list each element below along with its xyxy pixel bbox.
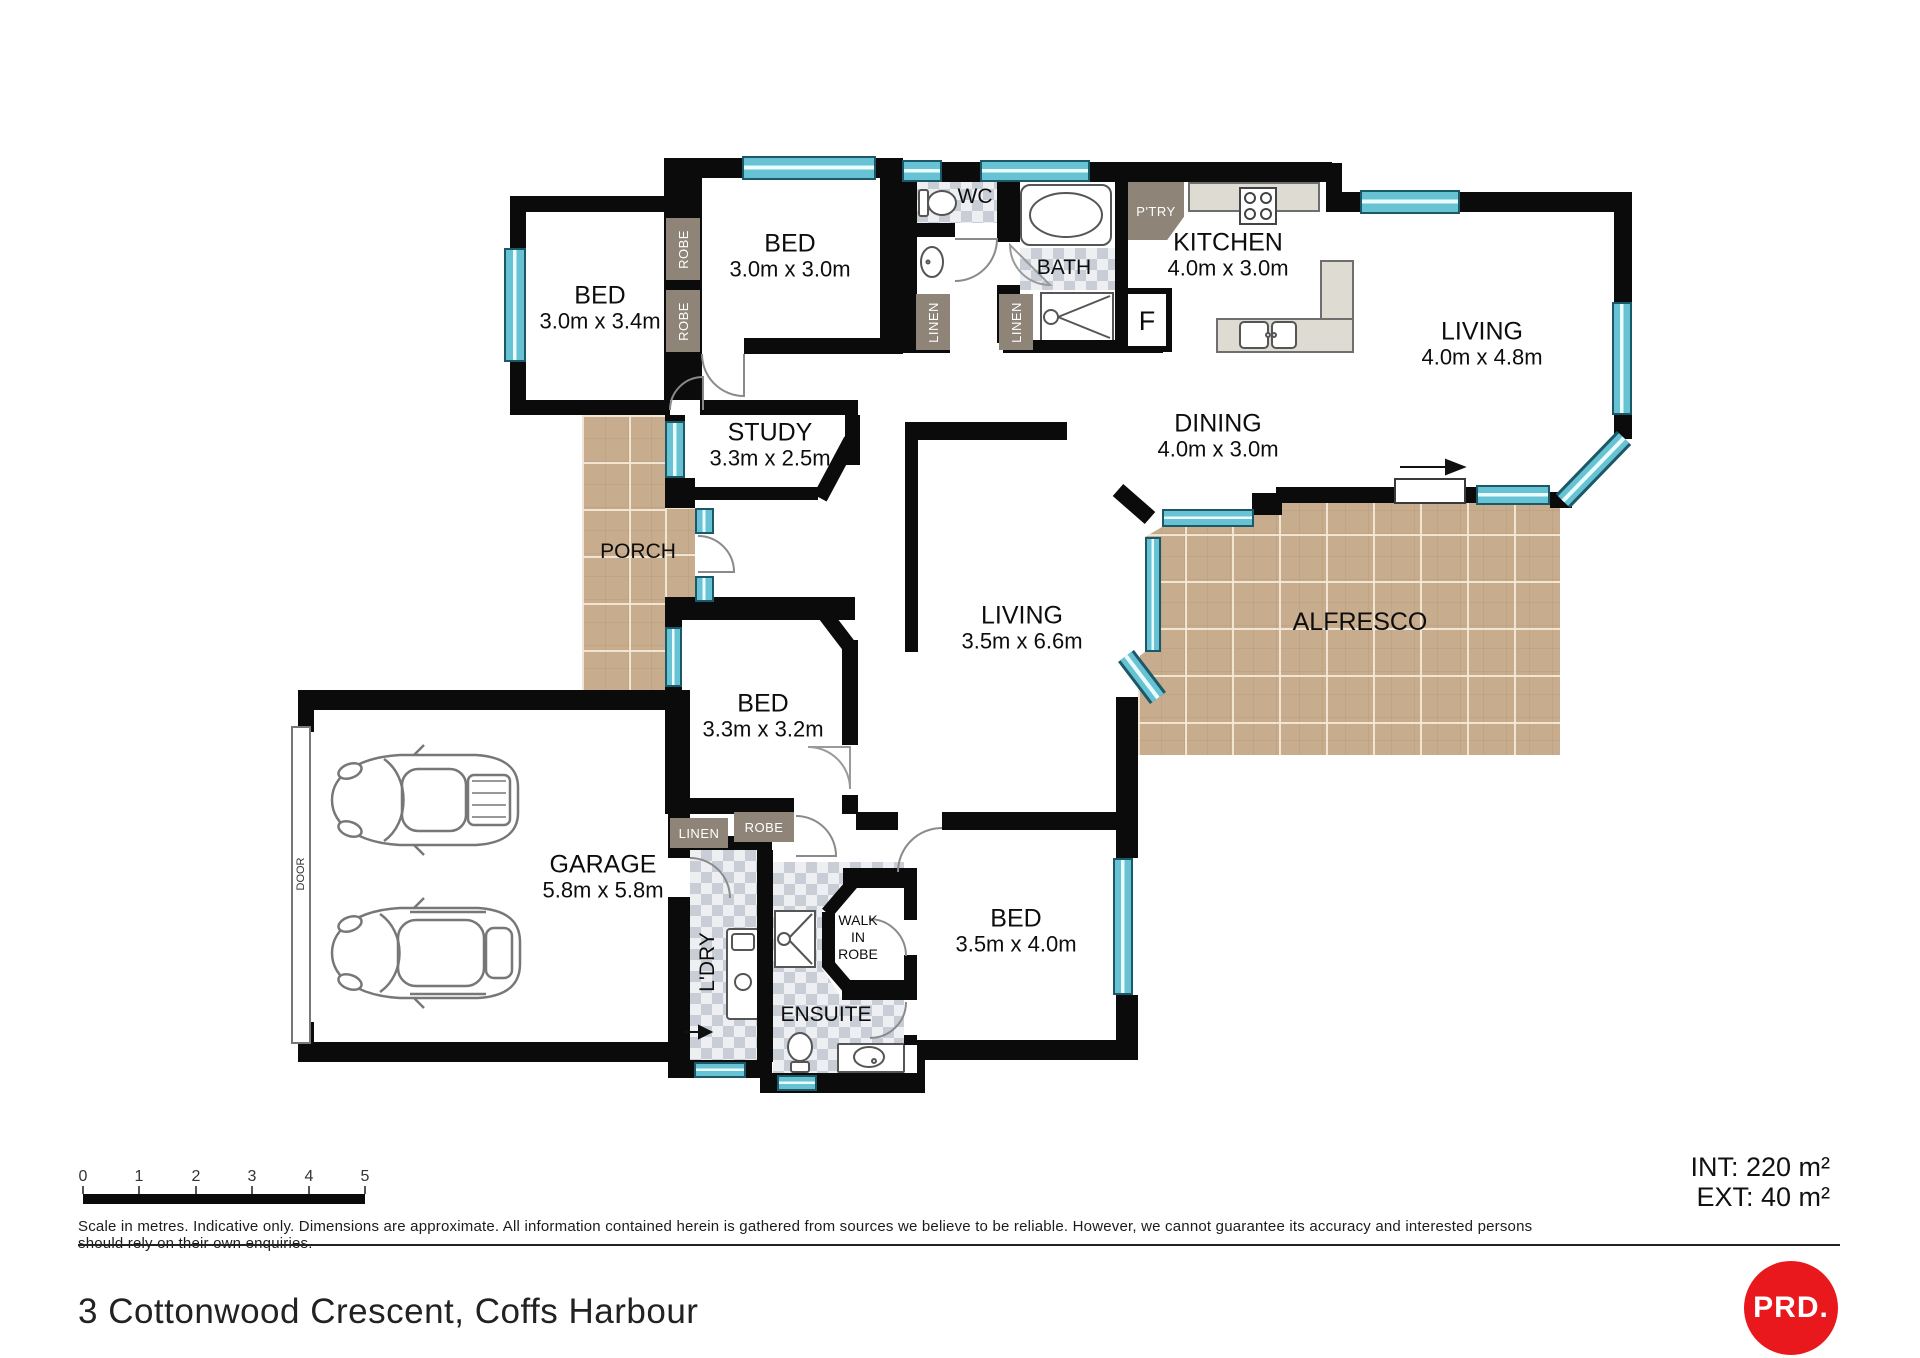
scale-number: 2 <box>192 1168 201 1186</box>
diagonal-window <box>1563 438 1624 501</box>
wall-segment <box>942 812 1138 830</box>
window <box>695 576 714 602</box>
room-dims: 4.0m x 4.8m <box>1421 346 1542 371</box>
room-name: ALFRESCO <box>1293 608 1428 636</box>
room-name: F <box>1139 306 1156 336</box>
wall-segment <box>880 158 903 352</box>
room-label-laundry: L'DRY <box>678 950 738 974</box>
room-label-living1: LIVING 4.0m x 4.8m <box>1421 318 1542 371</box>
window <box>1360 190 1460 214</box>
wall-segment <box>298 1042 690 1062</box>
linen-closet-1: LINEN <box>916 294 950 350</box>
room-dims: 3.5m x 6.6m <box>961 630 1082 655</box>
linen-closet-3: LINEN <box>670 818 728 848</box>
wall-segment <box>1614 415 1632 439</box>
scale-tick <box>138 1186 140 1194</box>
linen-label: LINEN <box>926 302 941 343</box>
wall-segment <box>757 850 773 1062</box>
diagonal-window <box>1563 438 1624 501</box>
room-name: WC <box>958 185 993 209</box>
wall-segment <box>1116 995 1138 1060</box>
window <box>902 160 942 182</box>
scale-number: 4 <box>305 1168 314 1186</box>
robe-label: ROBE <box>745 820 784 835</box>
room-name: BED <box>702 690 823 718</box>
door-arc <box>698 536 734 572</box>
room-name: BATH <box>1037 256 1091 280</box>
linen-closet-2: LINEN <box>999 294 1033 350</box>
room-label-alfresco: ALFRESCO <box>1293 608 1428 636</box>
wall-segment <box>845 415 860 465</box>
linen-label: LINEN <box>1009 302 1024 343</box>
wall-segment <box>856 812 898 830</box>
room-dims: 4.0m x 3.0m <box>1167 257 1288 282</box>
disclaimer-text: Scale in metres. Indicative only. Dimens… <box>78 1218 1578 1252</box>
area-ext: EXT: 40 m² <box>1530 1182 1830 1213</box>
room-dims: 5.8m x 5.8m <box>542 879 663 904</box>
wall-segment <box>904 1035 917 1045</box>
window <box>777 1075 817 1091</box>
room-label-ensuite: ENSUITE <box>780 1003 871 1027</box>
scale-number: 5 <box>361 1168 370 1186</box>
room-dims: 3.0m x 3.4m <box>539 310 660 335</box>
diagonal-window <box>1563 438 1624 501</box>
room-name: LIVING <box>1421 318 1542 346</box>
room-label-garage: GARAGE 5.8m x 5.8m <box>542 851 663 904</box>
scale-tick <box>364 1186 366 1194</box>
room-name: ENSUITE <box>780 1003 871 1027</box>
room-label-walk-in-robe: WALK IN ROBE <box>838 912 878 962</box>
room-label-study: STUDY 3.3m x 2.5m <box>709 419 830 472</box>
wall-segment <box>665 620 682 627</box>
window <box>1113 858 1133 995</box>
wall-segment <box>822 912 835 967</box>
room-name: L'DRY <box>696 932 720 992</box>
robe-label: ROBE <box>676 230 691 269</box>
room-label-wc: WC <box>958 185 993 209</box>
room-name: STUDY <box>709 419 830 447</box>
wall-segment <box>905 422 918 652</box>
scale-tick <box>251 1186 253 1194</box>
wall-segment <box>917 1040 1138 1060</box>
wall-segment <box>298 690 690 710</box>
wall-segment <box>665 597 855 620</box>
wall-segment <box>1116 790 1138 858</box>
robe-closet-2: ROBE <box>666 290 700 352</box>
bath-shower <box>1040 292 1114 342</box>
room-label-living2: LIVING 3.5m x 6.6m <box>961 602 1082 655</box>
room-name: BED <box>729 230 850 258</box>
window <box>742 156 876 180</box>
room-dims: 3.3m x 3.2m <box>702 718 823 743</box>
wall-segment <box>917 1040 925 1093</box>
island-counter-horizontal <box>1216 318 1354 353</box>
room-name: BED <box>539 282 660 310</box>
scale-bar-rect <box>83 1194 365 1204</box>
window <box>980 160 1090 182</box>
room-label-bed1: BED 3.0m x 3.4m <box>539 282 660 335</box>
room-label-bed4: BED 3.5m x 4.0m <box>955 905 1076 958</box>
room-dims: 3.5m x 4.0m <box>955 933 1076 958</box>
prd-logo-text: PRD. <box>1753 1291 1829 1325</box>
wall-segment <box>1276 487 1394 503</box>
wall-segment <box>700 400 858 415</box>
wall-segment <box>1550 492 1572 508</box>
wall-segment <box>695 487 818 500</box>
window <box>694 1062 746 1078</box>
room-dims: 3.3m x 2.5m <box>709 447 830 472</box>
wall-segment <box>1116 697 1138 790</box>
wall-segment <box>917 223 955 237</box>
scale-number: 3 <box>248 1168 257 1186</box>
door-arc <box>955 239 997 281</box>
divider-rule <box>78 1244 1840 1246</box>
robe-closet-1: ROBE <box>666 218 700 280</box>
wall-segment <box>905 422 1067 440</box>
scale-number: 0 <box>79 1168 88 1186</box>
linen-label: LINEN <box>679 826 720 841</box>
bathtub <box>1020 184 1112 246</box>
room-name: LIVING <box>961 602 1082 630</box>
wall-segment <box>510 400 670 415</box>
door-arc <box>702 354 744 396</box>
wall-segment <box>665 478 695 508</box>
window <box>665 421 685 478</box>
scale-tick <box>195 1186 197 1194</box>
window <box>1145 537 1161 652</box>
wir-line: IN <box>838 929 878 946</box>
room-name: BED <box>955 905 1076 933</box>
wall-segment <box>842 980 907 1000</box>
door-arc <box>796 816 836 856</box>
wir-line: ROBE <box>838 945 878 962</box>
prd-logo: PRD. <box>1744 1261 1838 1355</box>
robe-closet-3: ROBE <box>734 812 794 842</box>
room-name: DINING <box>1157 410 1278 438</box>
room-label-bed3: BED 3.3m x 3.2m <box>702 690 823 743</box>
pantry-label: P'TRY <box>1136 204 1175 219</box>
room-name: PORCH <box>600 540 676 564</box>
sliding-door-panel <box>1394 478 1466 504</box>
scale-tick <box>82 1186 84 1194</box>
window <box>695 508 714 534</box>
room-label-bath: BATH <box>1037 256 1091 280</box>
room-label-kitchen: KITCHEN 4.0m x 3.0m <box>1167 229 1288 282</box>
washing-machine <box>726 928 760 1020</box>
car-icon <box>332 745 520 1008</box>
wall-segment <box>1614 192 1632 304</box>
ensuite-shower <box>774 910 816 968</box>
wall-segment <box>903 162 917 352</box>
scale-number: 1 <box>135 1168 144 1186</box>
robe-label: ROBE <box>676 302 691 341</box>
window <box>1612 302 1632 415</box>
door-arc <box>808 747 850 789</box>
room-name: GARAGE <box>542 851 663 879</box>
room-dims: 3.0m x 3.0m <box>729 258 850 283</box>
wall-segment <box>843 868 917 888</box>
diagonal-wall <box>1118 490 1150 518</box>
window <box>504 248 526 362</box>
window <box>1476 485 1550 505</box>
room-label-dining: DINING 4.0m x 3.0m <box>1157 410 1278 463</box>
room-label-fridge: F <box>1139 306 1156 336</box>
window <box>665 627 682 687</box>
window <box>1162 509 1254 527</box>
room-label-bed2: BED 3.0m x 3.0m <box>729 230 850 283</box>
wir-line: WALK <box>838 912 878 929</box>
garage-door-label: DOOR <box>285 868 318 880</box>
door-arc <box>898 828 942 872</box>
area-int: INT: 220 m² <box>1530 1152 1830 1183</box>
wall-segment <box>842 640 858 745</box>
floorplan-page: ROBE ROBE LINEN LINEN P'TRY LINEN ROBE <box>0 0 1920 1358</box>
kitchen-counter <box>1188 182 1320 212</box>
address-title: 3 Cottonwood Crescent, Coffs Harbour <box>78 1292 698 1332</box>
wall-segment <box>744 338 903 354</box>
scale-tick <box>308 1186 310 1194</box>
room-name: KITCHEN <box>1167 229 1288 257</box>
door-label: DOOR <box>295 858 307 891</box>
ensuite-vanity <box>837 1043 905 1073</box>
room-dims: 4.0m x 3.0m <box>1157 438 1278 463</box>
room-label-porch: PORCH <box>600 540 676 564</box>
